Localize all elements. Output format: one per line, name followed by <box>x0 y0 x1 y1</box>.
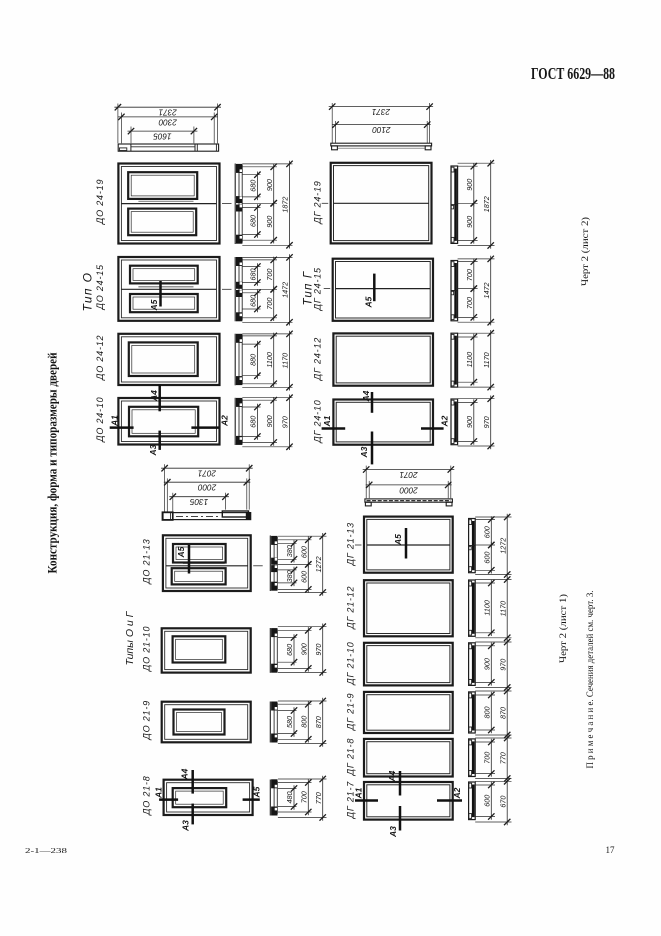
svg-text:2071: 2071 <box>198 469 217 478</box>
svg-text:1305: 1305 <box>190 497 209 506</box>
svg-text:2300: 2300 <box>158 117 178 126</box>
svg-text:700: 700 <box>265 298 274 310</box>
svg-text:ДГ 21-12: ДГ 21-12 <box>346 586 356 630</box>
svg-text:Конструкция, форма и типоразме: Конструкция, форма и типоразмеры дверей <box>45 352 60 573</box>
svg-text:А5: А5 <box>393 534 403 546</box>
svg-text:ДО 21-10: ДО 21-10 <box>142 626 152 672</box>
svg-text:А1: А1 <box>110 415 120 427</box>
svg-text:ДГ 21-13: ДГ 21-13 <box>346 522 356 566</box>
svg-text:580: 580 <box>285 716 294 728</box>
svg-text:А3: А3 <box>181 820 191 832</box>
svg-text:770: 770 <box>314 792 323 804</box>
svg-text:900: 900 <box>465 179 474 191</box>
svg-text:А5: А5 <box>252 786 262 798</box>
svg-text:А1: А1 <box>322 415 332 427</box>
svg-text:А1: А1 <box>154 787 164 799</box>
svg-text:1472: 1472 <box>281 282 290 298</box>
svg-text:2371: 2371 <box>372 107 391 116</box>
svg-text:ДГ 21-9: ДГ 21-9 <box>346 693 356 731</box>
svg-text:Типы О и Г: Типы О и Г <box>124 610 136 665</box>
svg-text:ДГ 24-10: ДГ 24-10 <box>313 399 323 443</box>
svg-text:1872: 1872 <box>482 196 491 212</box>
svg-text:1272: 1272 <box>314 556 323 572</box>
svg-text:900: 900 <box>465 216 474 228</box>
svg-text:А3: А3 <box>148 444 158 456</box>
svg-text:А4: А4 <box>387 770 397 782</box>
svg-text:А3: А3 <box>388 826 398 838</box>
svg-text:Черт 2 (лист 1): Черт 2 (лист 1) <box>558 594 568 663</box>
svg-text:1100: 1100 <box>265 352 274 367</box>
svg-text:А1: А1 <box>354 787 364 799</box>
svg-text:680: 680 <box>249 180 258 192</box>
svg-text:А5: А5 <box>364 296 374 308</box>
svg-text:ДО 24-15: ДО 24-15 <box>95 264 105 310</box>
svg-text:600: 600 <box>300 571 309 583</box>
svg-text:1170: 1170 <box>482 352 491 367</box>
svg-text:А4: А4 <box>361 390 371 402</box>
svg-text:680: 680 <box>249 269 258 281</box>
svg-text:900: 900 <box>265 216 274 228</box>
svg-text:2-1—238: 2-1—238 <box>25 846 67 855</box>
svg-text:1100: 1100 <box>483 600 492 615</box>
svg-text:680: 680 <box>249 215 258 227</box>
svg-text:900: 900 <box>265 179 274 191</box>
svg-text:2000: 2000 <box>399 485 419 494</box>
svg-text:ДГ 21-10: ДГ 21-10 <box>346 641 356 685</box>
svg-text:А5: А5 <box>149 299 159 311</box>
svg-text:А4: А4 <box>149 390 159 402</box>
svg-text:880: 880 <box>249 354 258 366</box>
svg-text:680: 680 <box>249 416 258 428</box>
svg-text:900: 900 <box>300 643 309 655</box>
svg-text:380: 380 <box>285 545 294 557</box>
svg-text:1472: 1472 <box>482 283 491 299</box>
svg-text:Тип О: Тип О <box>81 272 95 312</box>
svg-text:А5: А5 <box>176 546 186 558</box>
svg-text:1272: 1272 <box>498 538 507 554</box>
svg-text:ДГ 24-19: ДГ 24-19 <box>313 180 323 224</box>
svg-text:ДГ 24-15: ДГ 24-15 <box>313 267 323 311</box>
svg-text:А4: А4 <box>180 768 190 780</box>
svg-text:ДГ 24-12: ДГ 24-12 <box>313 337 323 381</box>
svg-text:900: 900 <box>465 416 474 428</box>
svg-text:П р и м е ч а н и е. Сечения: П р и м е ч а н и е. Сечения деталей см.… <box>585 591 595 769</box>
svg-text:900: 900 <box>265 415 274 427</box>
svg-text:1170: 1170 <box>498 601 507 616</box>
svg-text:600: 600 <box>483 795 492 807</box>
svg-text:970: 970 <box>314 644 323 656</box>
svg-text:600: 600 <box>300 546 309 558</box>
svg-text:380: 380 <box>285 570 294 582</box>
svg-text:800: 800 <box>300 716 309 728</box>
svg-text:800: 800 <box>483 707 492 719</box>
svg-text:ДО 21-13: ДО 21-13 <box>142 538 152 584</box>
svg-text:ДО 24-10: ДО 24-10 <box>95 397 105 443</box>
svg-text:900: 900 <box>483 658 492 670</box>
svg-text:970: 970 <box>281 416 290 428</box>
svg-text:870: 870 <box>314 716 323 728</box>
svg-text:Черт 2 (лист 2): Черт 2 (лист 2) <box>580 217 590 286</box>
svg-text:А2: А2 <box>440 415 450 427</box>
svg-text:А3: А3 <box>359 446 369 458</box>
svg-text:1872: 1872 <box>281 197 290 213</box>
svg-text:700: 700 <box>300 791 309 803</box>
svg-text:2100: 2100 <box>372 125 392 134</box>
svg-text:770: 770 <box>498 752 507 764</box>
svg-text:600: 600 <box>483 526 492 538</box>
svg-text:ДГ 21-8: ДГ 21-8 <box>346 738 356 776</box>
svg-text:ДГ 21-7: ДГ 21-7 <box>346 781 356 820</box>
svg-text:700: 700 <box>265 269 274 281</box>
svg-text:ГОСТ 6629—88: ГОСТ 6629—88 <box>531 64 615 83</box>
svg-text:А2: А2 <box>220 415 230 427</box>
svg-text:480: 480 <box>285 792 294 804</box>
svg-text:700: 700 <box>465 269 474 281</box>
svg-text:ДО 24-12: ДО 24-12 <box>95 335 105 381</box>
svg-text:2371: 2371 <box>159 108 178 117</box>
svg-text:2000: 2000 <box>198 483 218 492</box>
svg-text:700: 700 <box>483 752 492 764</box>
svg-text:ДО 21-9: ДО 21-9 <box>142 700 152 740</box>
svg-text:2071: 2071 <box>399 470 418 479</box>
svg-text:1170: 1170 <box>281 353 290 368</box>
svg-text:700: 700 <box>465 297 474 309</box>
svg-text:970: 970 <box>482 416 491 428</box>
svg-text:680: 680 <box>285 644 294 656</box>
svg-text:680: 680 <box>249 295 258 307</box>
svg-text:600: 600 <box>483 552 492 564</box>
svg-text:А2: А2 <box>452 787 462 799</box>
svg-text:1605: 1605 <box>153 132 172 141</box>
svg-text:670: 670 <box>498 796 507 808</box>
svg-text:17: 17 <box>606 845 616 855</box>
svg-text:870: 870 <box>498 707 507 719</box>
svg-text:ДО 24-19: ДО 24-19 <box>95 179 105 225</box>
svg-text:970: 970 <box>498 659 507 671</box>
svg-text:ДО 21-8: ДО 21-8 <box>142 775 152 815</box>
svg-text:1100: 1100 <box>465 352 474 367</box>
